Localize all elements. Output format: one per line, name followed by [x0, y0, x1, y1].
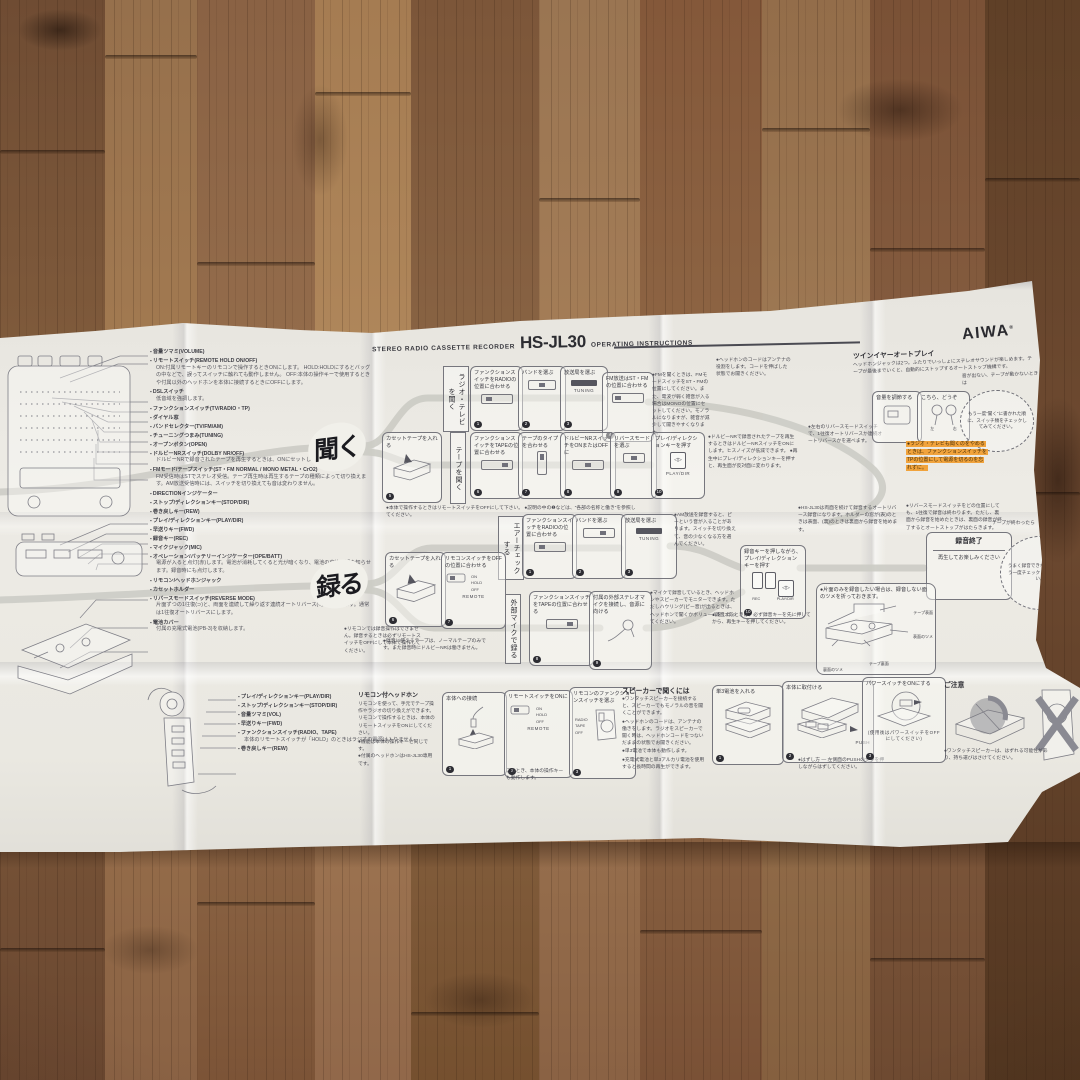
model-number: HS-JL30: [520, 332, 586, 353]
remote-on-step-box: リモートスイッチをONに ON HOLD OFF REMOTE 2: [504, 690, 573, 778]
rec-key-icon: [752, 572, 763, 589]
aircheck-note: ●AM放送を録音すると、ピーという音が入ることがあります。スイッチを切り換えて、…: [674, 512, 736, 548]
player-front-illustration: [2, 352, 142, 522]
part-item: 電池カバー付属の充電式電池(PB-3)を収納します。: [150, 620, 374, 634]
product-line: STEREO RADIO CASSETTE RECORDER: [372, 343, 515, 353]
attach-step-box: 本体に取付ける PUSH 2: [782, 681, 874, 763]
step-box: カセットテープを入れる 5: [382, 432, 442, 503]
done-divider: [933, 550, 1005, 551]
tape-row-label: テープを聞く: [450, 432, 466, 504]
part-item: 音量ツマミ(VOLUME): [150, 349, 374, 356]
step-box: ファンクションスイッチをRADIOの位置に合わせる 1: [470, 366, 523, 431]
connect-step-box: 本体への接続 1: [442, 692, 507, 776]
volume-adjust-box: 音量を調節する: [872, 391, 922, 443]
fm-mode-switch-icon: [612, 393, 644, 403]
step-box: リモコンスイッチをOFFの位置に合わせる ON HOLD OFF REMOTE …: [441, 552, 506, 629]
earphones-icon: [927, 403, 961, 427]
cassette-insert-icon: [393, 572, 439, 604]
function-switch-icon: [546, 619, 578, 629]
part-item: DSLスイッチ低音域を強調します。: [150, 389, 374, 403]
band-selector-icon: [528, 380, 556, 390]
step-box: ファンクションスイッチをRADIOの位置に合わせる 1: [522, 514, 577, 579]
step-box: バンドを選ぶ 2: [518, 366, 566, 431]
tab-illustration-box: ●片面のみを録音したい場合は、録音しない面のツメを折っておきます。 テープ表面 …: [816, 583, 936, 675]
player-mini-icon: [882, 404, 912, 426]
part-item: リモートスイッチ(REMOTE HOLD ON/OFF)ON:付属リモートキーの…: [150, 358, 374, 387]
reverse-mode-switch-icon: [623, 453, 645, 463]
function-switch-labels: RADIO TAPE OFF: [573, 717, 588, 735]
step-box: 放送局を選ぶ TUNING 3: [621, 514, 677, 579]
remote-control-illustration: [142, 686, 234, 798]
part-item: プレイ/ディレクションキー(PLAY/DIR): [150, 518, 374, 525]
remote-switch-labels: ON HOLD OFF: [536, 706, 547, 724]
remote-heading: リモコン付ヘッドホン: [358, 690, 436, 699]
caution-note: ●ワンタッチスピーカーは、はずれる可能性があり、持ち運びはさけてください。: [944, 748, 1048, 762]
step-box: 付属の外部ステレオマイクを接続し、音源に向ける 9: [589, 591, 652, 670]
reverse-mode-note: ●リバースモードスイッチをどの位置にしても、1往復で録音は終わります。ただし、裏…: [906, 503, 1002, 532]
caution-carry-illustration: [948, 690, 1032, 752]
dolby-switch-icon: [572, 460, 604, 470]
battery-insert-icon: [722, 698, 774, 738]
remote-switch-icon: [508, 704, 532, 720]
rec-key-icon: [765, 572, 776, 589]
cassette-insert-icon: [390, 452, 434, 482]
step-box: バンドを選ぶ 2: [572, 514, 626, 579]
record-key-labels: REC PLAY/DIR: [744, 597, 802, 602]
mic-row-label: 外部マイクで録る: [505, 594, 521, 664]
step-box: プレイ/ディレクションキーを押す ◁▷ PLAY/DIR 10: [651, 432, 705, 499]
earphone-labels: 左 右: [921, 427, 966, 432]
battery-step-box: 単3電池を入れる 1: [712, 685, 784, 765]
power-on-step-box: パワースイッチをONにする (使用後はパワースイッチをOFFにしてください) 3: [862, 677, 946, 763]
remote-switch-labels: ON HOLD OFF: [471, 574, 482, 592]
remote-description: リモコン付ヘッドホン リモコンを使って、手元でテープ操作やラジオの切り換えができ…: [358, 690, 436, 768]
play-dir-key-icon: ◁▷: [778, 580, 794, 597]
record-done-box: 録音終了 再生してお楽しみください: [926, 532, 1012, 600]
step-box: ドルビーNRスイッチをONまたはOFFに 8: [560, 432, 616, 499]
record-note: ●録音するときは、必ず録音キーを先に押してから、再生キーを押してください。: [712, 612, 812, 626]
function-switch-icon: [481, 460, 513, 470]
player-open-illustration: [8, 606, 143, 702]
plug-connect-icon: [453, 705, 497, 749]
part-item: ストップ/ディレクションキー(STOP/DIR): [150, 500, 374, 507]
part-item: ファンクションスイッチ(TV/RADIO・TP): [150, 406, 374, 413]
tape-type-switch-icon: [537, 451, 547, 475]
radio-note: ●FMを聞くときは、FMモードスイッチをST・FMの位置にしてください。また、電…: [652, 372, 710, 437]
remote-body-icon: [592, 708, 618, 742]
registered-mark: ®: [1009, 324, 1015, 330]
photo-scene: { "meta": {"brand":"AIWA","reg":"®","pro…: [0, 0, 1080, 1080]
microphone-icon: [604, 617, 638, 643]
part-item: DIRECTIONインジケーター: [150, 491, 374, 498]
step-box: カセットテープを入れる 6: [385, 552, 446, 627]
function-switch-icon: [481, 394, 513, 404]
band-selector-icon: [583, 528, 615, 538]
tape-note: ●ドルビーNRで録音されたテープを再生するときはドルビーNRスイッチをONにしま…: [708, 434, 798, 470]
step-box: テープのタイプを合わせる 7: [518, 432, 566, 499]
caution-heading: ご注意: [944, 679, 964, 689]
trouble-label: 音が出ない、テープが動かないときは: [962, 371, 1042, 388]
power-off-highlight-note: ●ラジオ・テレビも聞くのをやめるときは、ファンクションスイッチをTPの位置にして…: [906, 440, 988, 472]
radio-row-label: ラジオ・テレビを聞く: [443, 366, 469, 432]
radio-note: ●ヘッドホンのコードはアンテナの役割をします。コードを伸ばした状態でお聞きくださ…: [716, 357, 792, 379]
load-note: ●録音に使えるテープは、ノーマルテープのみです。また録音時にドルビーNRは働きま…: [383, 638, 487, 652]
part-item: 録音キー(REC): [150, 536, 374, 543]
tuning-dial-icon: [571, 380, 597, 386]
record-step-box: 録音キーを押しながら、プレイ/ディレクションキーを押す ◁▷ REC PLAY/…: [740, 545, 806, 619]
function-switch-icon: [534, 542, 566, 552]
play-dir-key-icon: ◁▷: [670, 452, 686, 469]
part-item: マイクジャック(MIC): [150, 545, 374, 552]
autoreverse-note: ●HS-JL30は両面を続けて録音するオートリバース録音になります。ホルダーの窓…: [798, 505, 900, 534]
cassette-tab-illustration: [820, 602, 924, 648]
part-item: 巻き戻しキー(REW): [150, 509, 374, 516]
tuning-dial-icon: [636, 528, 662, 534]
speaker-notes: ●ワンタッチスピーカーを接続すると、スピーカーでもモノラルの音を聞くことができま…: [622, 696, 706, 771]
part-item: ダイヤル窓: [150, 415, 374, 422]
remote-on-note: このとき、本体の操作キーも動作します。: [506, 768, 566, 782]
speaker-attach-icon: [792, 694, 864, 738]
part-item: 早送りキー(FWD): [150, 527, 374, 534]
step-box: ファンクションスイッチをTAPEの位置に合わせる 8: [529, 591, 594, 666]
step-box: 放送局を選ぶ TUNING 3: [560, 366, 608, 431]
power-switch-icon: [872, 690, 936, 728]
step-box: ファンクションスイッチをTAPEの位置に合わせる 6: [470, 432, 523, 499]
remote-switch-icon: [445, 572, 467, 588]
step-box: リバースモードを選ぶ 9: [610, 432, 657, 499]
speaker-heading: スピーカーで聞くには: [622, 685, 690, 695]
player-top-illustration: [12, 528, 147, 590]
record-keys: ◁▷: [744, 572, 802, 597]
brand-text: AIWA: [961, 322, 1010, 343]
